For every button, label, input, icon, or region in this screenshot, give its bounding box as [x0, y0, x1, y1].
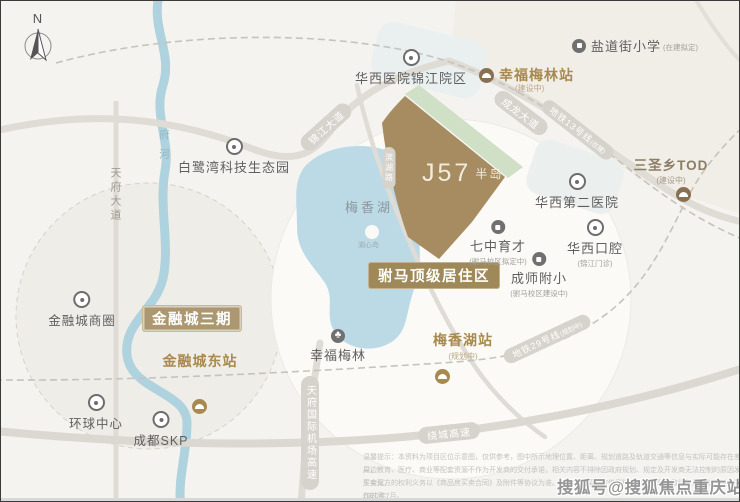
- poi-chengshi-primary-school: 成师附小 (驸马校区建设中): [510, 252, 568, 299]
- poi-financial-city-business: 金融城商圈: [48, 291, 116, 329]
- pill-airport-expressway: 天府国际机场高速: [301, 376, 319, 490]
- school-icon: [491, 220, 505, 234]
- tianfu-avenue-label: 天府大道: [107, 167, 123, 223]
- tod-subnote: (建设中): [656, 175, 685, 186]
- station-meixianghu: 梅香湖站 (规划中): [433, 330, 493, 362]
- pill-binhu-road: 滨湖路: [383, 147, 396, 189]
- poi-label: 华西第二医院: [535, 192, 619, 211]
- j57-site-logo: J57 半岛: [422, 159, 503, 188]
- school-icon: [532, 252, 546, 266]
- poi-subnote: (驸马校区建设中): [510, 288, 568, 299]
- poi-label: 盐道街小学: [591, 36, 661, 55]
- building-icon: [87, 394, 104, 411]
- poi-label: 华西口腔: [567, 238, 623, 257]
- school-icon: [572, 39, 586, 53]
- tod-label: 三圣乡TOD: [634, 154, 709, 174]
- poi-global-center: 环球中心: [69, 394, 123, 432]
- park-icon: [225, 138, 242, 155]
- station-xingfu-meilin: 幸福梅林站 (建设中): [479, 65, 574, 85]
- station-subnote: (建设中): [515, 83, 544, 94]
- metro-icon-meixianghu: [435, 369, 450, 384]
- compass-n-label: N: [23, 11, 53, 26]
- poi-label: 环球中心: [69, 413, 123, 432]
- fu-river-label: 府河: [157, 129, 172, 168]
- logo-main: J57: [422, 159, 471, 188]
- poi-label: 幸福梅林: [310, 345, 366, 364]
- map-canvas: N J57 半岛 驸马顶级居住区 金融城三期 府河 天府大道 梅香湖 湖心岛 锦…: [0, 0, 740, 502]
- poi-subnote: (在建拟定): [663, 42, 698, 53]
- tree-icon: [331, 329, 345, 343]
- poi-yandaojie-primary-school: 盐道街小学 (在建拟定): [572, 36, 698, 55]
- poi-label: 金融城商圈: [48, 310, 116, 329]
- lake-island-shape: [365, 225, 379, 239]
- station-label: 金融城东站: [163, 351, 238, 371]
- north-compass: N: [23, 11, 53, 66]
- poi-bailuwan-eco-park: 白鹭湾科技生态园: [178, 138, 290, 176]
- poi-xingfu-meilin-park: 幸福梅林: [310, 329, 366, 364]
- mall-icon: [152, 411, 169, 428]
- poi-label: 成师附小: [511, 268, 567, 287]
- metro-icon-financial-city-east: [192, 399, 207, 414]
- lake-island-label: 湖心岛: [358, 240, 379, 250]
- poi-sanshengxiang-tod: 三圣乡TOD (建设中): [634, 154, 709, 186]
- poi-huaxi-second-hospital: 华西第二医院: [535, 173, 619, 211]
- compass-needle-icon: [23, 26, 53, 66]
- poi-huaxi-jinjiang-hospital: 华西医院锦江院区: [355, 49, 467, 87]
- watermark: 搜狐号@搜狐焦点重庆站: [557, 474, 740, 498]
- poi-label: 成都SKP: [133, 430, 188, 449]
- hospital-icon: [586, 219, 603, 236]
- station-financial-city-east: 金融城东站: [163, 351, 238, 371]
- station-label: 幸福梅林站: [499, 65, 574, 85]
- station-subnote: (规划中): [448, 351, 477, 362]
- poi-chengdu-skp: 成都SKP: [133, 411, 188, 449]
- hospital-icon: [568, 173, 585, 190]
- station-label: 梅香湖站: [433, 330, 493, 350]
- poi-label: 白鹭湾科技生态园: [178, 157, 290, 176]
- poi-huaxi-stomatology: 华西口腔 (锦江门诊): [567, 219, 623, 269]
- metro-icon-sanshengxiang: [676, 187, 691, 202]
- hospital-icon: [402, 49, 419, 66]
- poi-label: 华西医院锦江院区: [355, 68, 467, 87]
- logo-sub: 半岛: [475, 165, 503, 182]
- business-icon: [73, 291, 90, 308]
- banner-financial-city: 金融城三期: [142, 305, 242, 332]
- poi-subnote: (锦江门诊): [577, 258, 612, 269]
- lake-label: 梅香湖: [345, 197, 393, 216]
- metro-icon: [479, 68, 494, 83]
